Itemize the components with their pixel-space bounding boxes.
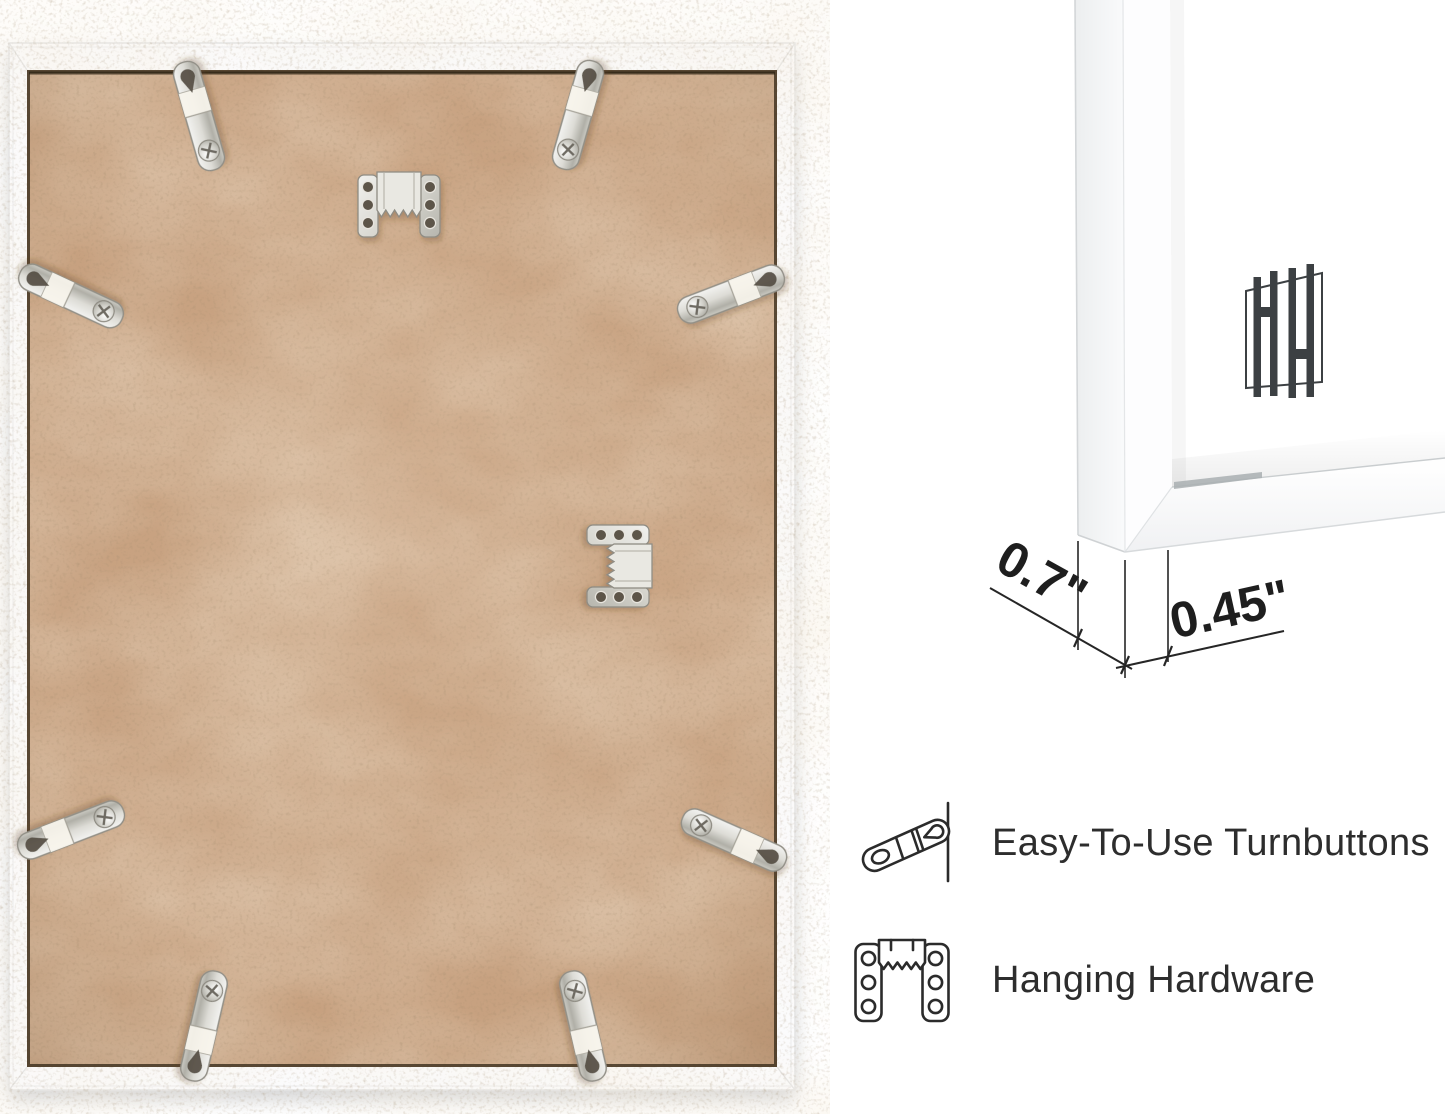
turnbutton-icon [852,799,954,887]
feature-hanging-hardware-label: Hanging Hardware [992,959,1315,1002]
feature-hanging-hardware: Hanging Hardware [852,934,1315,1026]
face-dimension-label: 0.45" [1165,569,1295,650]
frame-corner-detail: 0.7" 0.45" [940,0,1445,700]
hanging-hardware-icon [852,935,954,1025]
product-infographic: 0.7" 0.45" Easy-To-Use Turnbu [0,0,1445,1114]
feature-turnbuttons-label: Easy-To-Use Turnbuttons [992,822,1430,865]
frame-back-photo [0,0,830,1114]
frame-front-face-vertical [1123,0,1172,552]
frame-mat [1170,0,1445,487]
mdf-backing-board [27,70,777,1067]
feature-turnbuttons: Easy-To-Use Turnbuttons [852,797,1430,889]
frame-side-face [1075,0,1125,552]
depth-dimension-label: 0.7" [988,529,1097,623]
